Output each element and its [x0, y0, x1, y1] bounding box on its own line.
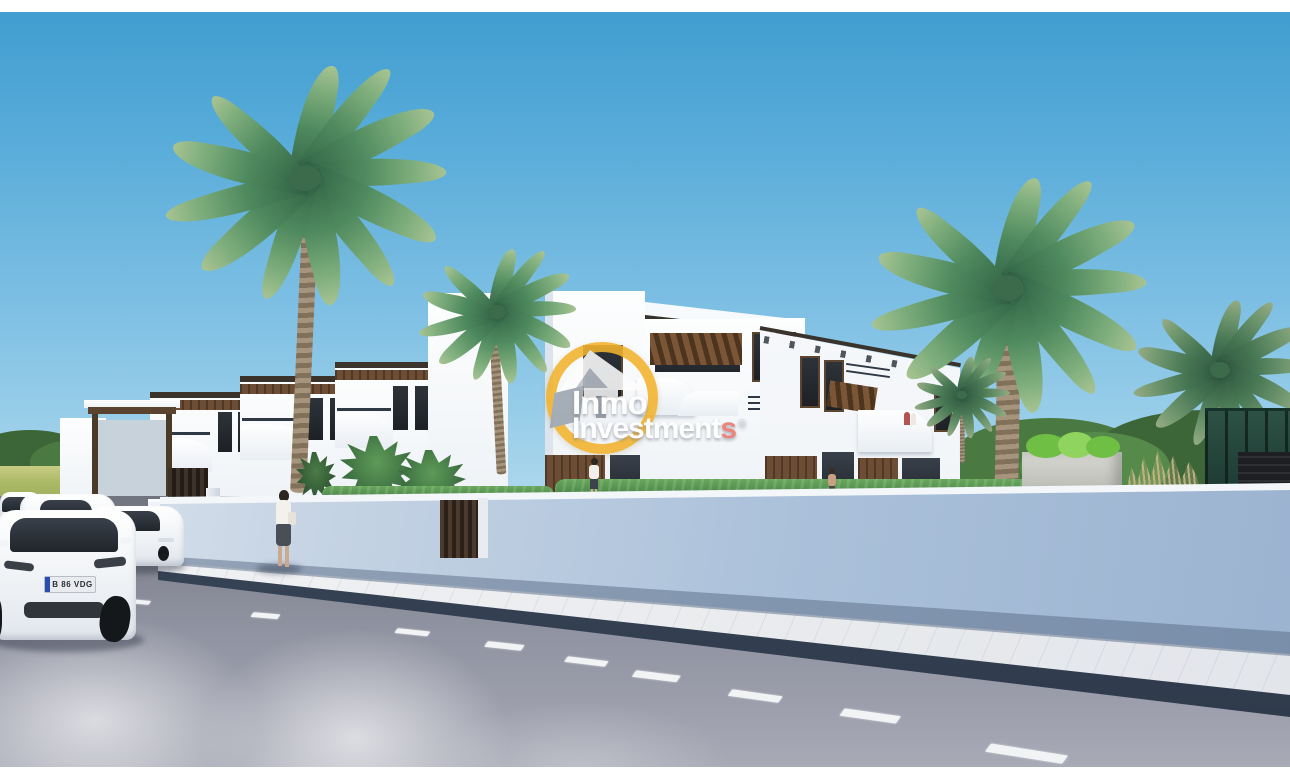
registered-trademark: ®: [738, 418, 746, 430]
architectural-render: B 86 VDG Inmo Investments®: [0, 0, 1290, 780]
watermark-brand-line2-main: Investment: [572, 412, 720, 445]
agency-watermark: Inmo Investments®: [0, 0, 1290, 780]
watermark-brand-line2-tail: s: [720, 412, 736, 445]
watermark-brand-line2: Investments®: [572, 412, 746, 446]
frame-border-top: [0, 0, 1290, 12]
frame-border-bottom: [0, 767, 1290, 780]
